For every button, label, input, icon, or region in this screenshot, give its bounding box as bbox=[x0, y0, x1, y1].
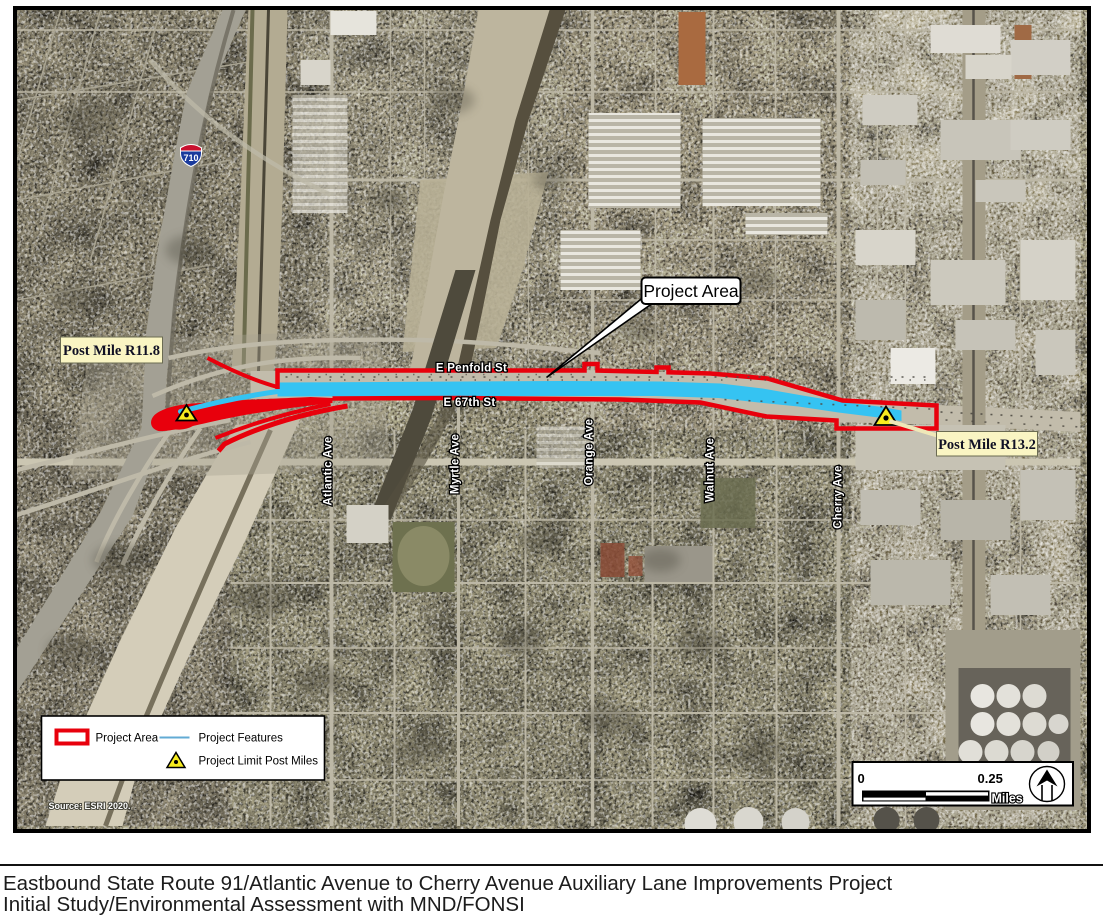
svg-text:Myrtle Ave: Myrtle Ave bbox=[450, 434, 462, 494]
svg-text:Walnut Ave: Walnut Ave bbox=[705, 438, 717, 502]
svg-text:Project Area: Project Area bbox=[96, 733, 159, 745]
svg-text:0: 0 bbox=[858, 771, 865, 786]
svg-text:Orange Ave: Orange Ave bbox=[584, 419, 596, 486]
svg-text:Project Features: Project Features bbox=[199, 733, 284, 745]
svg-text:Source: ESRI 2020.: Source: ESRI 2020. bbox=[49, 801, 131, 811]
svg-text:E 67th St: E 67th St bbox=[444, 397, 496, 409]
svg-text:Cherry Ave: Cherry Ave bbox=[833, 465, 845, 529]
svg-text:Atlantic Ave: Atlantic Ave bbox=[323, 436, 335, 505]
svg-text:Project Limit Post Miles: Project Limit Post Miles bbox=[199, 756, 319, 768]
svg-text:Post Mile R11.8: Post Mile R11.8 bbox=[63, 343, 160, 359]
svg-text:Project Area: Project Area bbox=[643, 281, 739, 301]
svg-text:Post Mile R13.2: Post Mile R13.2 bbox=[938, 437, 1036, 453]
svg-text:Miles: Miles bbox=[992, 792, 1023, 806]
svg-text:E Penfold St: E Penfold St bbox=[436, 363, 507, 375]
svg-text:710: 710 bbox=[183, 153, 198, 163]
svg-text:0.25: 0.25 bbox=[978, 771, 1003, 786]
